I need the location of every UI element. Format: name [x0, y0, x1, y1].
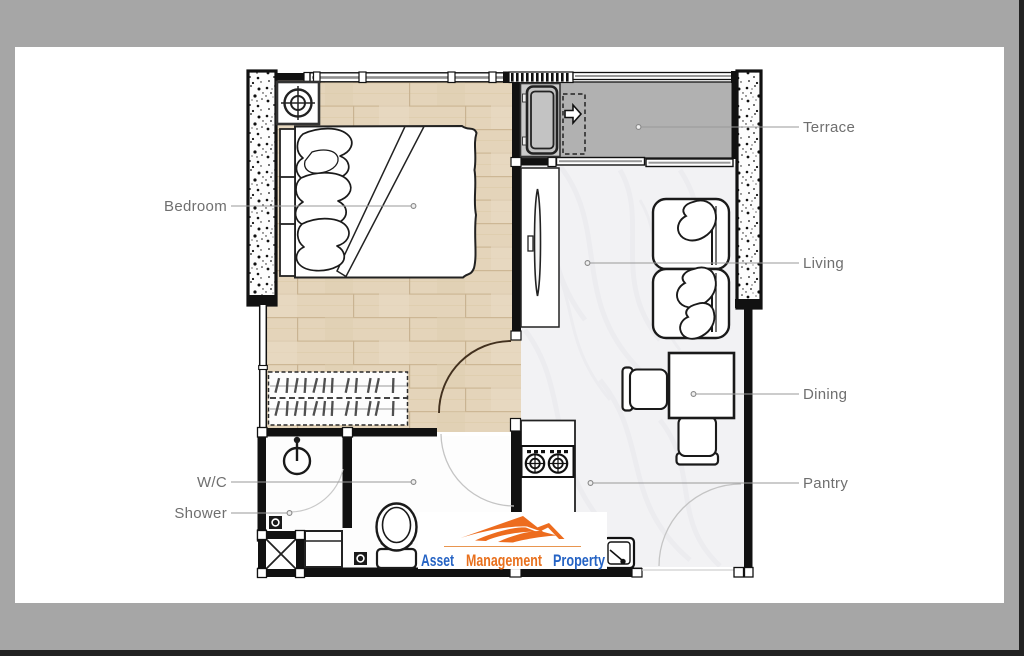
svg-text:Dining: Dining [803, 386, 847, 403]
svg-text:Pantry: Pantry [803, 475, 848, 492]
svg-text:Living: Living [803, 255, 844, 272]
svg-text:Management: Management [466, 552, 542, 570]
svg-text:Property: Property [553, 552, 606, 570]
svg-text:Asset: Asset [421, 552, 454, 570]
svg-text:Bedroom: Bedroom [164, 198, 227, 215]
svg-text:Terrace: Terrace [803, 119, 855, 136]
svg-text:Shower: Shower [174, 505, 227, 522]
svg-text:W/C: W/C [197, 474, 227, 491]
